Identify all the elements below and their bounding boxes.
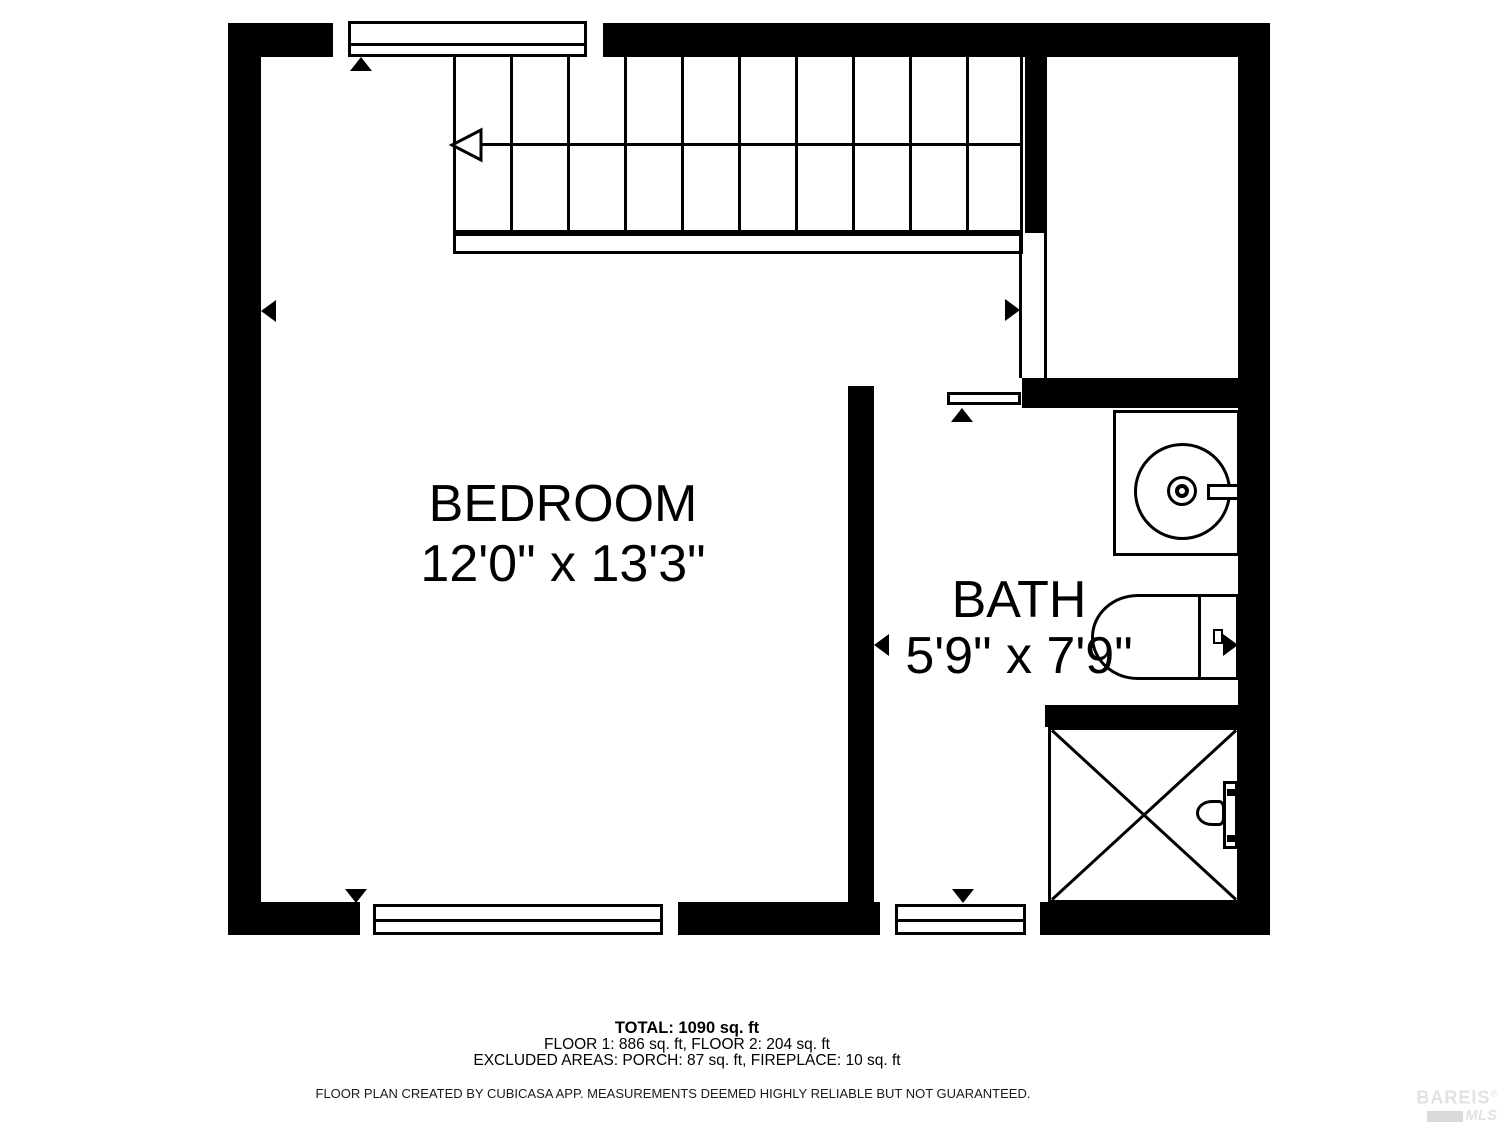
shower-valve-notch	[1227, 789, 1235, 796]
bedroom-dimensions: 12'0" x 13'3"	[363, 534, 763, 594]
bareis-mls-logo: BAREIS® MLS	[1405, 1086, 1497, 1124]
area-summary: TOTAL: 1090 sq. ft FLOOR 1: 886 sq. ft, …	[187, 1020, 1187, 1070]
bedroom-top-marker	[350, 57, 372, 71]
registered-mark: ®	[1490, 1089, 1497, 1099]
mls-row: MLS	[1405, 1108, 1497, 1124]
bath-door	[947, 392, 1021, 405]
bedroom-window	[373, 904, 663, 935]
landing-opening-line-right	[1044, 233, 1047, 378]
bedroom-bottom-marker	[345, 889, 367, 903]
logo-bar	[1427, 1111, 1463, 1122]
bath-label-block: BATH 5'9" x 7'9"	[819, 572, 1219, 684]
floor-areas-text: FLOOR 1: 886 sq. ft, FLOOR 2: 204 sq. ft	[187, 1037, 1187, 1054]
excluded-areas-text: EXCLUDED AREAS: PORCH: 87 sq. ft, FIREPL…	[187, 1053, 1187, 1070]
top-window	[348, 21, 587, 57]
bedroom-window-mullion	[376, 919, 660, 922]
total-area-text: TOTAL: 1090 sq. ft	[187, 1020, 1187, 1037]
bedroom-left-marker	[261, 300, 276, 322]
floor-plan-page: BEDROOM 12'0" x 13'3" BATH 5'9" x 7'9" T…	[0, 0, 1500, 1125]
shower-valve-notch	[1227, 835, 1235, 842]
right-wall	[1238, 23, 1270, 935]
bath-window	[895, 904, 1026, 935]
bath-dimensions: 5'9" x 7'9"	[819, 628, 1219, 684]
top-window-mullion	[351, 43, 584, 46]
stair-side-wall	[1025, 57, 1047, 233]
left-wall	[228, 23, 261, 935]
shower-handle	[1196, 800, 1225, 826]
sink-drain-center	[1175, 484, 1189, 498]
stair-direction-arrow	[448, 126, 486, 164]
bedroom-right-marker	[1005, 299, 1020, 321]
shower-partition-wall	[1045, 705, 1240, 727]
bareis-brand-text: BAREIS®	[1405, 1086, 1497, 1107]
sink-faucet	[1207, 484, 1240, 500]
bath-window-mullion	[898, 919, 1023, 922]
disclaimer-text: FLOOR PLAN CREATED BY CUBICASA APP. MEAS…	[173, 1086, 1173, 1101]
bath-bottom-marker	[952, 889, 974, 903]
bath-right-marker	[1223, 634, 1238, 656]
shower-valve	[1223, 781, 1238, 849]
bath-top-wall	[1022, 378, 1240, 408]
stair-base-strip	[453, 233, 1023, 254]
bedroom-label-block: BEDROOM 12'0" x 13'3"	[363, 474, 763, 594]
bedroom-label: BEDROOM	[363, 474, 763, 534]
mls-text: MLS	[1465, 1108, 1497, 1124]
bath-label: BATH	[819, 572, 1219, 628]
stair-direction-line	[456, 143, 1020, 146]
bath-door-marker	[951, 408, 973, 422]
